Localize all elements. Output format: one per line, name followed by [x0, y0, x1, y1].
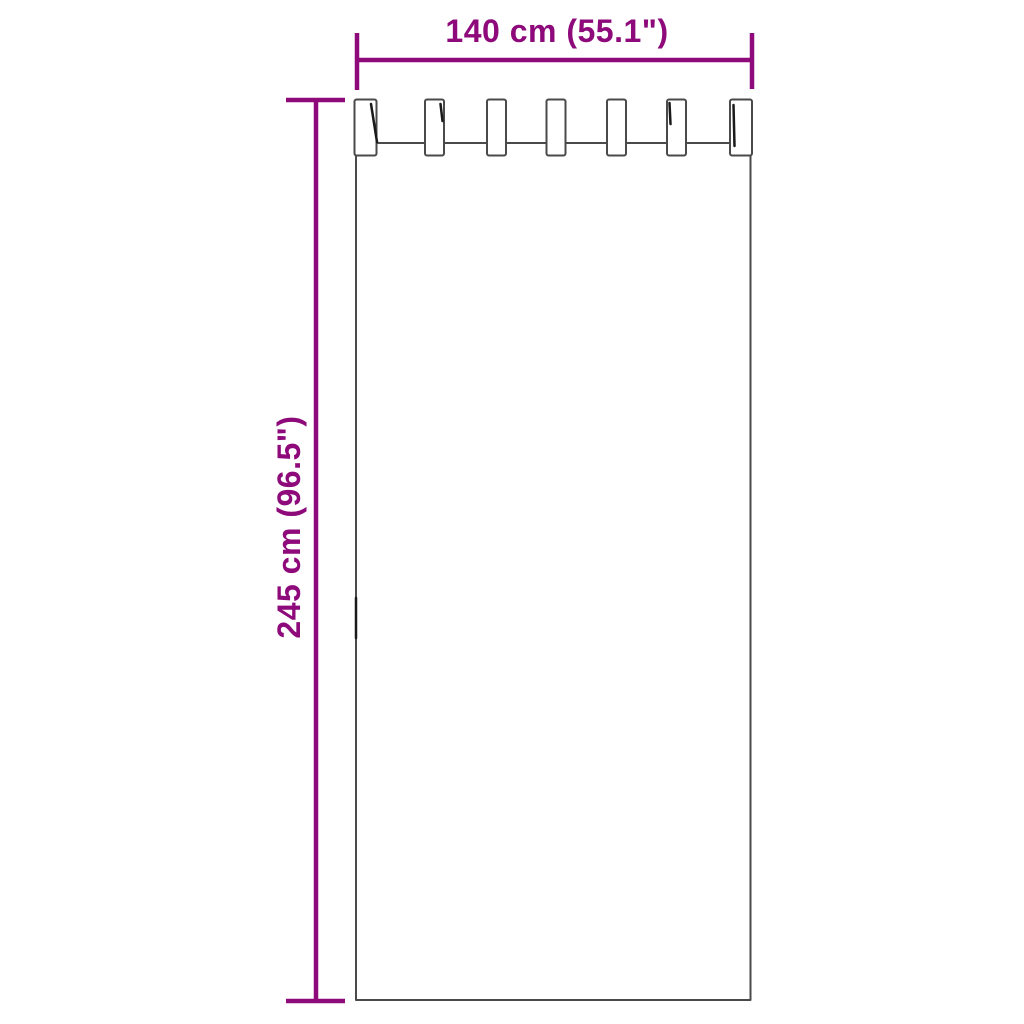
diagram-canvas: 140 cm (55.1") 245 cm (96.5") [0, 0, 1024, 1024]
curtain [355, 100, 753, 1001]
curtain-panel-outline [356, 152, 751, 1000]
curtain-fold-shading [356, 103, 735, 638]
tab-6-fold-line [670, 103, 671, 124]
curtain-tab-5 [607, 100, 626, 156]
width-dimension-label: 140 cm (55.1") [445, 13, 668, 49]
curtain-tab-4 [547, 100, 566, 156]
curtain-tab-3 [487, 100, 506, 156]
height-dimension-label: 245 cm (96.5") [271, 415, 307, 638]
tab-7-fold-line [734, 105, 735, 146]
curtain-tab-1 [355, 100, 377, 156]
curtain-dimension-diagram: 140 cm (55.1") 245 cm (96.5") [0, 0, 1024, 1024]
